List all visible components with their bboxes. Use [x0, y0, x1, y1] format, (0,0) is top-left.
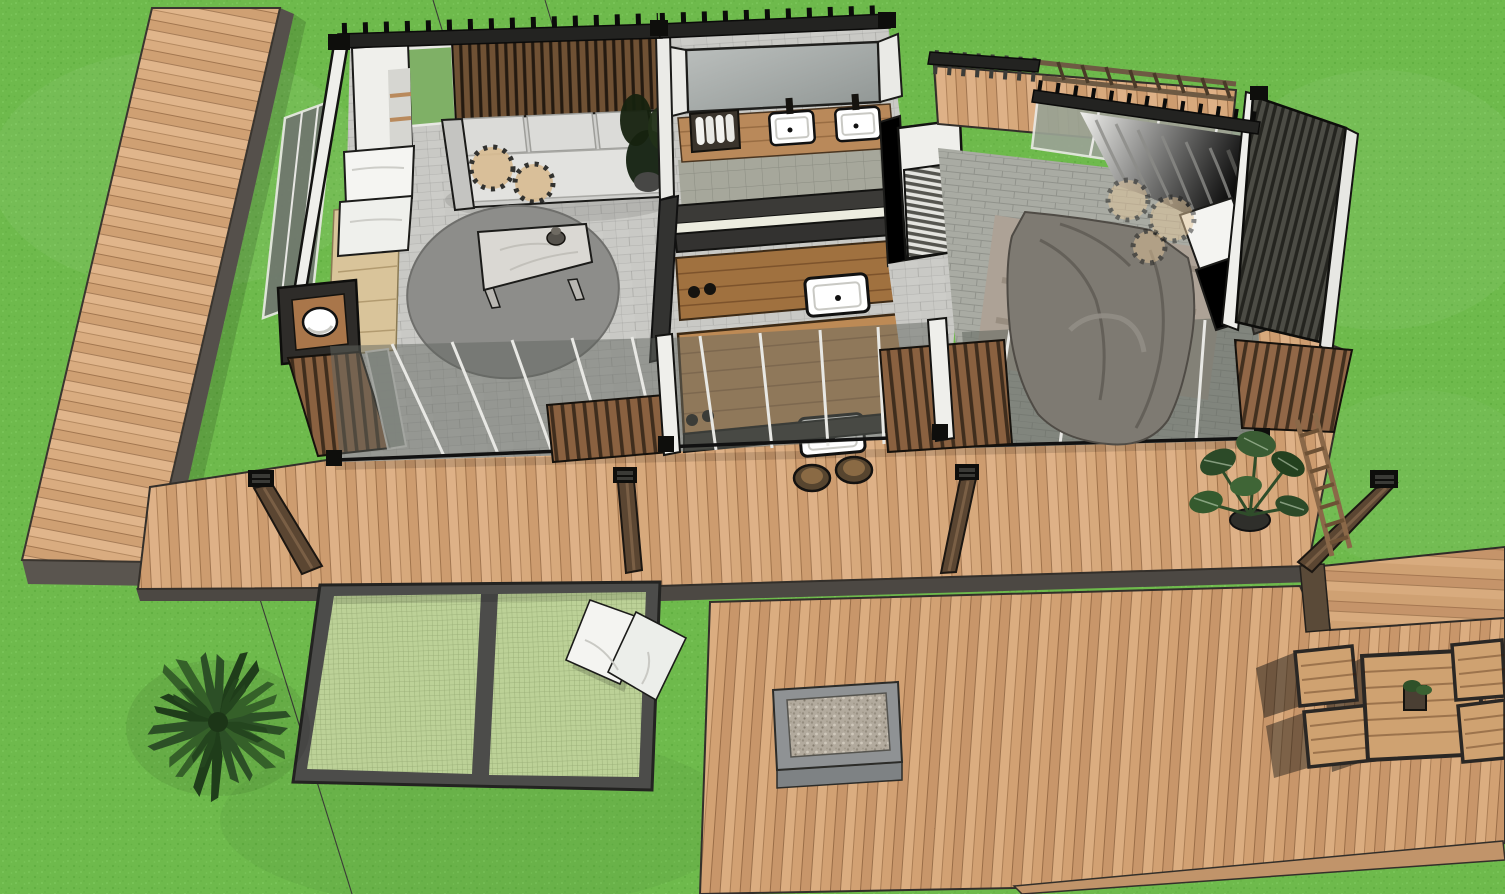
day-bed-pillow [344, 146, 414, 204]
net-lounge [293, 582, 686, 790]
faucet [785, 98, 793, 114]
fire-pit-gravel [787, 693, 890, 757]
lower-deck [700, 547, 1505, 894]
net-panel-left [307, 594, 481, 774]
sofa-back-cushion [527, 113, 596, 152]
dining-chair [1458, 700, 1505, 762]
rattan-pouf [471, 147, 513, 189]
bathroom-wall-cut [878, 34, 902, 102]
3d-viewport[interactable]: Aerial 3D cutaway rendering of a modern … [0, 0, 1505, 894]
front-slat-screen [1235, 340, 1352, 432]
front-slat-screen [547, 395, 671, 462]
left-wardrobe [352, 44, 412, 152]
render-viewport-wrapper: Aerial 3D cutaway rendering of a modern … [0, 0, 1505, 894]
palm-crown [208, 712, 228, 732]
fire-pit [773, 682, 902, 788]
rattan-pouf [515, 164, 553, 202]
day-bed-pillow [338, 196, 412, 256]
plant-pot [634, 172, 662, 192]
dining-chair [1295, 646, 1357, 706]
cooktop-knob [688, 286, 700, 298]
deck-step [1300, 564, 1330, 632]
faucet [851, 94, 859, 110]
dining-chair [1452, 640, 1505, 700]
divider-wall-cut [656, 34, 674, 200]
towel-basket [690, 110, 740, 152]
bathroom-mirror [686, 42, 880, 112]
cooktop-knob [704, 283, 716, 295]
